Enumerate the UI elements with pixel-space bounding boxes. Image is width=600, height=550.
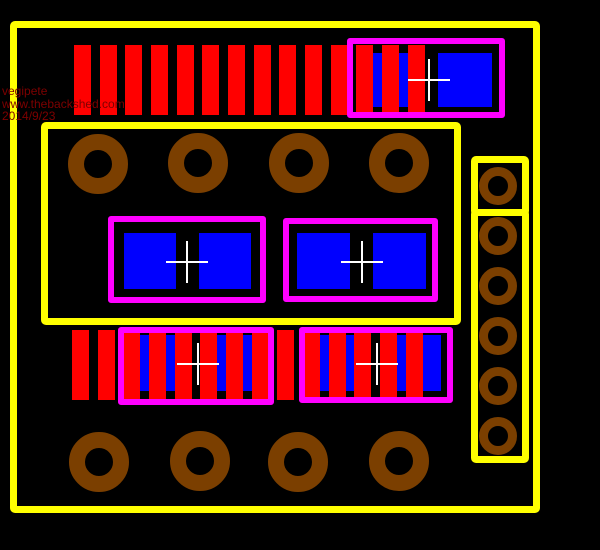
origin-crosshair-v — [428, 59, 430, 101]
origin-crosshair-v — [361, 241, 363, 283]
component-outline-bottom-left — [118, 327, 274, 405]
pcb-canvas: vegipete www.thebackshed.com 2014/9/23 — [0, 0, 600, 550]
origin-crosshair-v — [197, 343, 199, 385]
origin-crosshair-v — [376, 343, 378, 385]
origin-crosshair-v — [186, 241, 188, 283]
right-header-outline-top — [471, 156, 529, 216]
right-header-outline-bottom — [471, 209, 529, 463]
component-outline-top-right — [347, 38, 505, 118]
